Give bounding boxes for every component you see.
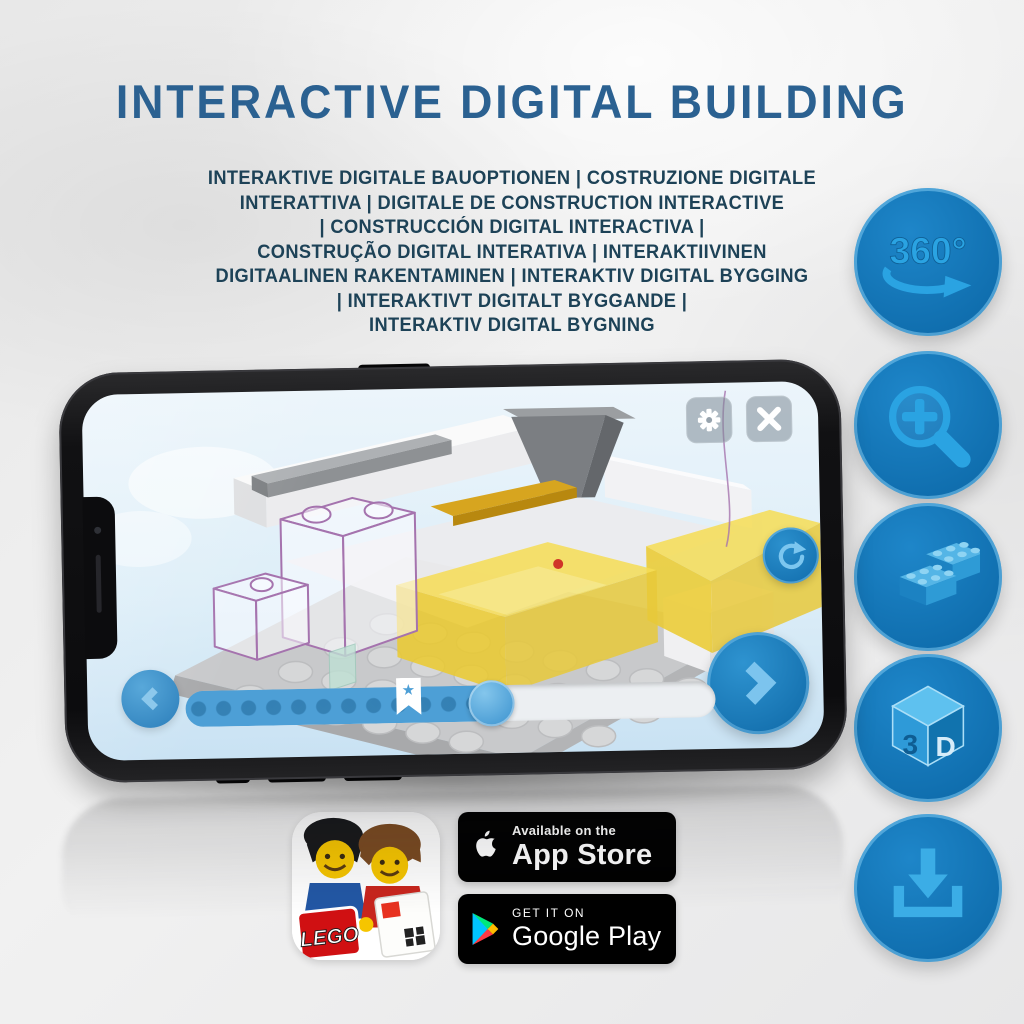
page-title-text: INTERACTIVE DIGITAL BUILDING: [116, 74, 909, 129]
page-title: INTERACTIVE DIGITAL BUILDING: [0, 74, 1024, 129]
cube-3-label: 3: [903, 729, 919, 760]
feature-360-rotation: 360°: [854, 188, 1002, 336]
settings-button[interactable]: [686, 397, 733, 444]
gear-icon: [694, 405, 725, 436]
rotate-reset-icon: [773, 538, 808, 573]
feature-zoom: [854, 351, 1002, 499]
subtitle-line: INTERATTIVA | DIGITALE DE CONSTRUCTION I…: [20, 192, 1003, 217]
slider-knob[interactable]: [468, 680, 515, 727]
phone-screen: ★: [82, 381, 825, 761]
chevron-right-icon: [736, 661, 781, 706]
speaker-slot: [96, 555, 102, 613]
phone-mockup: ★: [58, 359, 848, 784]
download-icon: [876, 836, 980, 940]
feature-3d-view: 3 D: [854, 654, 1002, 802]
phone-reflection: [61, 785, 846, 950]
zoom-in-icon: [876, 373, 980, 477]
phone-notch: [83, 496, 118, 659]
brick-icon: [876, 525, 980, 629]
3d-cube-icon: 3 D: [876, 676, 980, 780]
subtitle-line: | INTERAKTIVT DIGITALT BYGGANDE |: [20, 290, 1003, 315]
cube-d-label: D: [936, 731, 956, 762]
camera-icon: [94, 527, 101, 534]
feature-brick-building: [854, 503, 1002, 651]
close-button[interactable]: [746, 395, 793, 442]
subtitle-line: INTERAKTIV DIGITAL BYGNING: [20, 314, 1003, 339]
subtitle-line: INTERAKTIVE DIGITALE BAUOPTIONEN | COSTR…: [20, 167, 1003, 192]
360-rotation-icon: 360°: [876, 210, 980, 314]
marketing-panel: INTERACTIVE DIGITAL BUILDING INTERAKTIVE…: [0, 0, 1024, 1024]
close-icon: [754, 404, 785, 435]
chevron-left-icon: [137, 686, 163, 712]
360-label: 360°: [889, 230, 966, 272]
feature-download: [854, 814, 1002, 962]
subtitle-line: | CONSTRUCCIÓN DIGITAL INTERACTIVA |: [20, 216, 1003, 241]
slider-progress-fill: [185, 685, 493, 727]
